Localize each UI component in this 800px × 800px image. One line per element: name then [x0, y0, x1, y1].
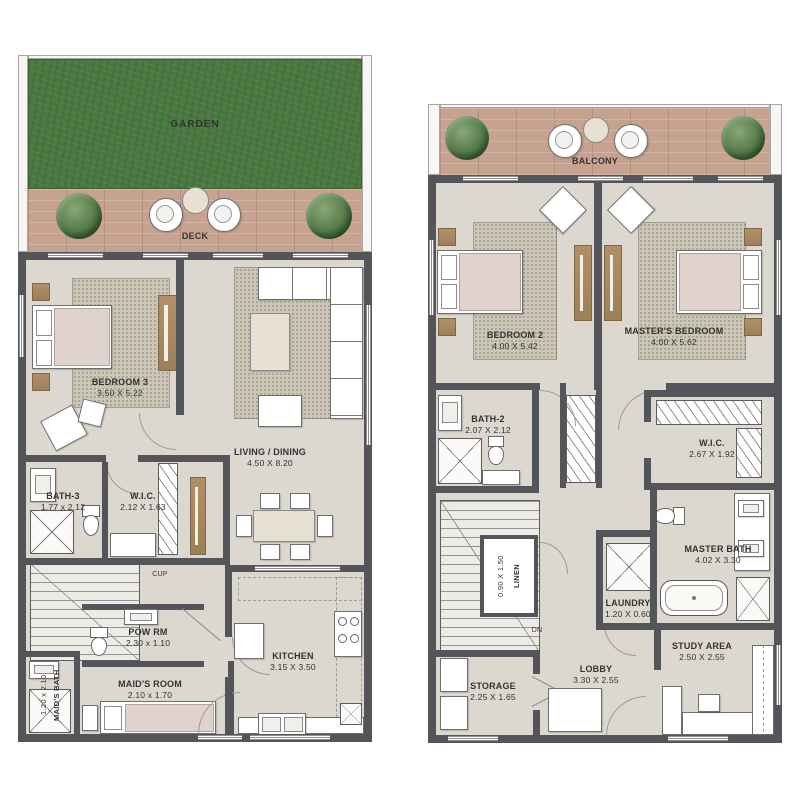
wall	[560, 383, 566, 488]
room-dims: 4.00 X 5.62	[594, 337, 754, 348]
tub-drain	[692, 596, 696, 600]
sofa-section	[330, 267, 363, 419]
cupboard-name: CUP	[140, 571, 180, 579]
wic-wardrobe	[656, 400, 762, 425]
wall	[82, 661, 204, 667]
desk	[682, 712, 760, 735]
nightstand	[32, 283, 50, 301]
wall	[533, 710, 540, 743]
room-name: BATH-3	[22, 491, 104, 502]
room-dims: 1.77 x 2.12	[22, 502, 104, 513]
dining-chair	[260, 493, 280, 509]
room-dims: 4.00 X 5.42	[465, 341, 565, 352]
wall	[644, 390, 651, 422]
console	[190, 477, 206, 555]
room-name: LIVING / DINING	[210, 447, 330, 458]
window	[143, 253, 188, 258]
bed	[32, 305, 112, 369]
dining-chair	[236, 515, 252, 537]
coffee-table	[250, 313, 290, 371]
powder-sink	[124, 609, 158, 625]
maids-bath-dims: 1.20 x 2.10	[39, 657, 52, 733]
garden-fence-right	[362, 55, 372, 252]
bath2-label: BATH-2 2.07 X 2.12	[438, 414, 538, 436]
potted-tree	[721, 116, 765, 160]
wardrobe-handle	[164, 305, 168, 361]
wall	[532, 383, 539, 493]
toilet	[653, 505, 685, 527]
room-dims: 1.20 X 0.60	[586, 609, 670, 620]
window	[718, 176, 763, 181]
room-dims: 2.10 x 1.70	[88, 690, 212, 701]
wall	[436, 650, 540, 657]
window	[578, 176, 623, 181]
maids-room-label: MAID'S ROOM 2.10 x 1.70	[88, 679, 212, 701]
partition-wall	[176, 252, 184, 415]
nightstand	[744, 228, 762, 246]
wall	[666, 383, 774, 390]
balcony-table	[583, 117, 609, 143]
mattress	[54, 308, 110, 366]
toilet-bowl	[83, 515, 100, 536]
wall	[225, 677, 232, 734]
shower	[736, 577, 770, 621]
room-dims: 2.25 X 1.65	[443, 692, 543, 703]
room-name: W.I.C.	[108, 491, 178, 502]
storage-label: STORAGE 2.25 X 1.65	[443, 681, 543, 703]
dining-chair	[260, 544, 280, 560]
balcony-rail-left	[428, 104, 440, 175]
pillow	[36, 310, 52, 336]
vanity-sink	[738, 500, 764, 517]
room-name: BATH-2	[438, 414, 538, 425]
nightstand	[32, 373, 50, 391]
dining-chair	[317, 515, 333, 537]
room-name: BEDROOM 3	[70, 377, 170, 388]
wall	[436, 383, 540, 390]
linen-name: LINEN	[512, 540, 525, 612]
deck-label: DECK	[28, 231, 362, 242]
wardrobe-handle	[610, 255, 614, 311]
desk	[662, 686, 682, 735]
sink-basin	[284, 717, 303, 732]
window	[463, 176, 518, 181]
bed	[676, 250, 762, 314]
room-dims: 3.15 X 3.50	[225, 662, 361, 673]
nightstand	[438, 318, 456, 336]
burner	[350, 617, 359, 626]
potted-tree	[445, 116, 489, 160]
room-dims: 3.30 X 2.55	[546, 675, 646, 686]
room-dims: 2.12 X 1.63	[108, 502, 178, 513]
cupboard-label: CUP	[140, 571, 180, 579]
wic-label: W.I.C. 2.67 X 1.92	[662, 438, 762, 460]
window	[48, 253, 103, 258]
toilet	[486, 436, 506, 466]
dining-chair	[290, 544, 310, 560]
balcony-rail-right	[770, 104, 782, 175]
ground-floor-plan: GARDEN DECK BEDROOM 3 3.50 X 5.22 LIVING…	[18, 55, 372, 743]
pow-rm-label: POW RM 2.30 x 1.10	[90, 627, 206, 649]
shower	[438, 438, 482, 484]
bed	[437, 250, 523, 314]
room-dims: 3.50 X 5.22	[70, 388, 170, 399]
window	[448, 736, 498, 741]
linen-closet-interior	[484, 539, 534, 613]
room-name: STUDY AREA	[642, 641, 762, 652]
dresser	[82, 705, 98, 731]
study-area-label: STUDY AREA 2.50 X 2.55	[642, 641, 762, 663]
desk-chair	[698, 694, 720, 712]
pillow	[441, 284, 457, 309]
window	[776, 645, 781, 705]
balcony-label: BALCONY	[535, 156, 655, 167]
window	[19, 295, 24, 357]
bedroom3-label: BEDROOM 3 3.50 X 5.22	[70, 377, 170, 399]
wall	[26, 558, 230, 565]
laundry-label: LAUNDRY 1.20 X 0.60	[586, 598, 670, 620]
room-name: STORAGE	[443, 681, 543, 692]
kitchen-pass-through	[255, 566, 340, 571]
deck-chair	[149, 198, 183, 232]
console-handle	[195, 487, 198, 545]
wall	[436, 486, 539, 493]
party-wall	[594, 183, 602, 390]
room-name: LOBBY	[546, 664, 646, 675]
wic-dresser	[110, 533, 156, 557]
lobby-mat	[548, 688, 602, 732]
wall	[533, 650, 540, 674]
room-name: MASTER'S BEDROOM	[594, 326, 754, 337]
kitchen-label: KITCHEN 3.15 X 3.50	[225, 651, 361, 673]
wall	[596, 383, 602, 488]
room-name: LAUNDRY	[586, 598, 670, 609]
window	[366, 305, 371, 445]
window	[668, 736, 728, 741]
wic-label: W.I.C. 2.12 X 1.63	[108, 491, 178, 513]
pillow	[441, 255, 457, 280]
wall	[596, 623, 774, 630]
window	[776, 240, 781, 315]
room-dims: 2.67 X 1.92	[662, 449, 762, 460]
shower	[30, 510, 74, 554]
wall	[225, 565, 232, 637]
room-name: KITCHEN	[225, 651, 361, 662]
balcony-name: BALCONY	[535, 156, 655, 167]
mattress	[459, 253, 521, 311]
wardrobe-handle	[580, 255, 584, 311]
floor-plan-sheet: { "palette": { "wall": "#54555a", "floor…	[0, 0, 800, 800]
lounge-chair	[258, 395, 302, 427]
wall	[223, 455, 230, 565]
window	[213, 253, 263, 258]
pillow	[743, 284, 759, 309]
garden-fence-left	[18, 55, 28, 252]
wall	[26, 455, 106, 462]
upper-floor-plan: BALCONY BEDROOM 2 4.00 X 5.42 MASTER'S B…	[428, 100, 782, 743]
deck-table	[182, 187, 209, 214]
vanity	[482, 470, 520, 485]
room-name: MASTER BATH	[658, 544, 778, 555]
stairs-dn-label: DN	[520, 627, 554, 635]
room-name: W.I.C.	[662, 438, 762, 449]
master-bath-label: MASTER BATH 4.02 X 3.30	[658, 544, 778, 566]
nightstand	[438, 228, 456, 246]
wall	[644, 390, 774, 397]
linen-closet-shell	[480, 535, 538, 617]
dining-chair	[290, 493, 310, 509]
floor-drain	[340, 703, 362, 725]
sink-basin	[262, 717, 281, 732]
wall	[74, 651, 80, 742]
pillow	[743, 255, 759, 280]
mattress	[679, 253, 741, 311]
linen-dims: 0.90 X 1.50	[496, 540, 509, 612]
dn-text: DN	[520, 627, 554, 635]
living-dining-label: LIVING / DINING 4.50 X 8.20	[210, 447, 330, 469]
toilet-bowl	[488, 446, 503, 466]
pillow	[104, 706, 122, 730]
burner	[350, 634, 359, 643]
room-dims: 4.02 X 3.30	[658, 555, 778, 566]
sink-basin	[743, 504, 760, 513]
garden-label: GARDEN	[28, 119, 362, 130]
bathtub	[660, 580, 728, 616]
room-dims: 2.30 x 1.10	[90, 638, 206, 649]
maids-bath-name: MAID'S BATH	[52, 657, 65, 733]
room-name: BEDROOM 2	[465, 330, 565, 341]
window	[643, 176, 693, 181]
window	[429, 240, 434, 315]
wall	[644, 483, 774, 490]
window	[293, 253, 348, 258]
room-dims: 4.50 X 8.20	[210, 458, 330, 469]
sink-basin	[130, 613, 152, 621]
dining-table	[253, 510, 315, 542]
bath3-label: BATH-3 1.77 x 2.12	[22, 491, 104, 513]
room-name: MAID'S ROOM	[88, 679, 212, 690]
burner	[338, 617, 347, 626]
balcony-chair	[614, 124, 648, 158]
masters-bedroom-label: MASTER'S BEDROOM 4.00 X 5.62	[594, 326, 754, 348]
double-sink	[258, 713, 306, 735]
burner	[338, 634, 347, 643]
room-name: POW RM	[90, 627, 206, 638]
wardrobe	[574, 245, 592, 321]
room-dims: 2.07 X 2.12	[438, 425, 538, 436]
garden-name: GARDEN	[28, 119, 362, 130]
wardrobe	[158, 295, 178, 371]
lobby-label: LOBBY 3.30 X 2.55	[546, 664, 646, 686]
wall	[596, 530, 656, 537]
pillow	[36, 340, 52, 366]
deck-name: DECK	[28, 231, 362, 242]
room-dims: 2.50 X 2.55	[642, 652, 762, 663]
laundry-floor	[606, 543, 652, 591]
deck-chair	[207, 198, 241, 232]
wardrobe	[604, 245, 622, 321]
entrance-threshold	[198, 735, 242, 740]
bedroom2-label: BEDROOM 2 4.00 X 5.42	[465, 330, 565, 352]
window	[250, 735, 330, 740]
balcony-chair	[548, 124, 582, 158]
